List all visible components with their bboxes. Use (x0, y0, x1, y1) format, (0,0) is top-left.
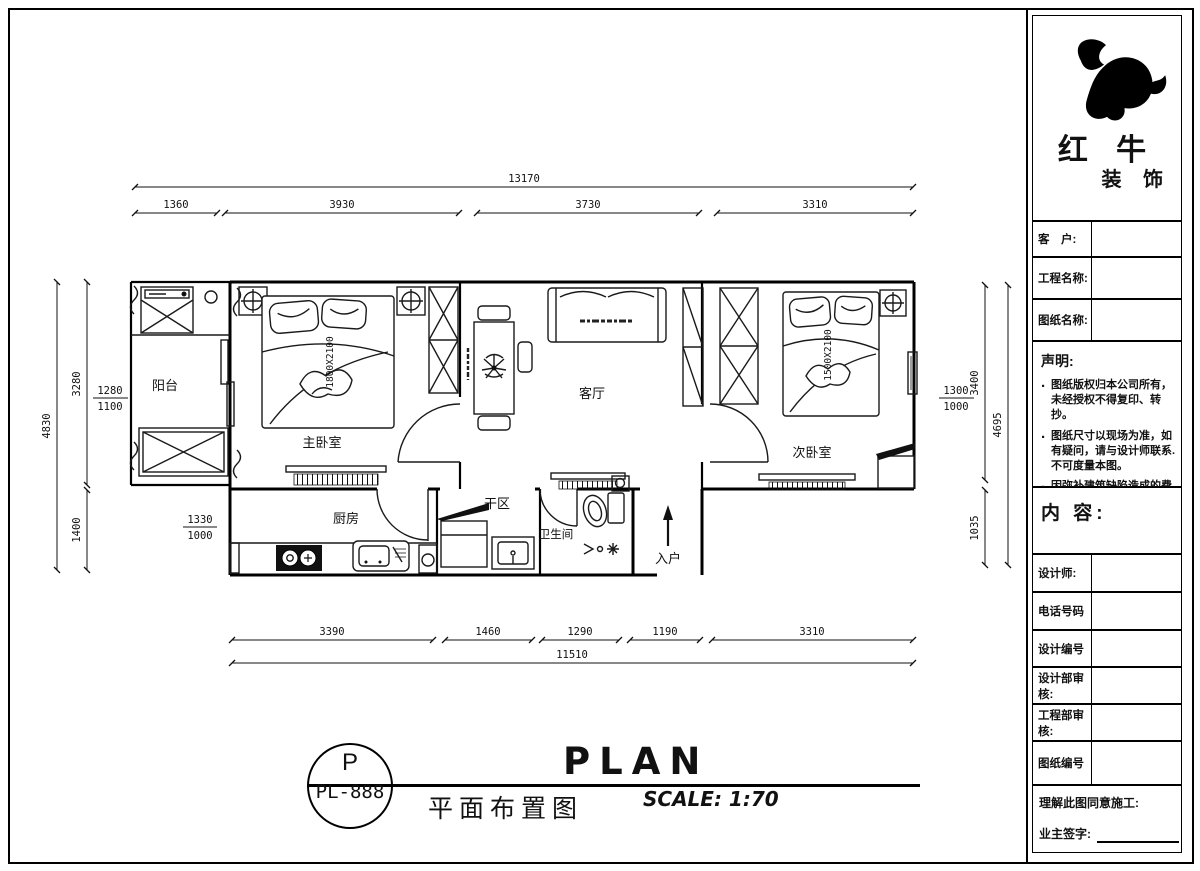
dim-top-3: 3730 (575, 199, 600, 211)
dim-balcony-fraction: 1280 1100 (93, 385, 128, 413)
dim-bot-total: 11510 (556, 649, 588, 661)
dim-bot-4: 1190 (652, 626, 677, 638)
titleblock-divider (1026, 8, 1028, 862)
svg-text:1100: 1100 (97, 401, 122, 413)
vanity-sink-icon (492, 537, 534, 569)
design-review-label: 设计部审核: (1033, 668, 1092, 703)
toilet-icon (580, 492, 624, 529)
statement-box: 声明: 图纸版权归本公司所有，未经授权不得复印、转抄。 图纸尺寸以现场为准，如有… (1032, 341, 1182, 487)
stamp-code: PL-888 (309, 781, 391, 804)
drawing-title-en: PLAN (563, 740, 709, 783)
svg-text:1000: 1000 (187, 530, 212, 542)
entrance-arrow-icon (663, 505, 673, 520)
field-eng-review: 工程部审核: (1032, 704, 1182, 741)
master-bedroom-room: 1800X2100 主卧室 (234, 287, 459, 485)
balcony-sink (205, 291, 217, 303)
field-sheet-no: 图纸编号 (1032, 741, 1182, 785)
entrance-label: 入户 (655, 551, 681, 566)
dim-bot-5: 3310 (799, 626, 824, 638)
design-no-label: 设计编号 (1033, 631, 1092, 666)
phone-value (1092, 593, 1181, 629)
living-room-label: 客厅 (579, 386, 605, 401)
living-room: 客厅 (468, 288, 703, 489)
brand-name-bottom: 装 饰 (1101, 170, 1171, 190)
dim-top-1: 1360 (163, 199, 188, 211)
second-bedroom-room: 1500X2100 次卧室 (720, 288, 917, 490)
designer-label: 设计师: (1033, 555, 1092, 591)
svg-text:1000: 1000 (943, 401, 968, 413)
kitchen-label: 厨房 (333, 511, 359, 526)
statement-item: 图纸尺寸以现场为准，如有疑问，请与设计师联系.不可度量本图。 (1051, 429, 1177, 475)
door-master-bedroom (398, 404, 460, 462)
washing-machine-icon (437, 503, 489, 567)
dim-left-lower: 1400 (71, 517, 83, 542)
brand-name-top: 红 牛 (1058, 136, 1156, 166)
radiator-second (759, 474, 855, 490)
balcony-room: 阳台 (131, 286, 231, 476)
field-designer: 设计师: (1032, 554, 1182, 592)
design-review-value (1092, 668, 1181, 703)
sheet-no-value (1092, 742, 1181, 784)
second-bedroom-label: 次卧室 (792, 445, 831, 460)
eng-review-value (1092, 705, 1181, 740)
washing-machine-balcony (141, 287, 193, 333)
dim-left-upper: 3280 (71, 371, 83, 396)
dim-right-total: 4695 (992, 412, 1004, 437)
bathroom-label: 卫生间 (539, 527, 574, 541)
statement-title: 声明: (1041, 351, 1181, 371)
dim-left-total: 4830 (41, 413, 53, 438)
kitchen-room: 厨房 (230, 511, 437, 573)
designer-value (1092, 555, 1181, 591)
design-no-value (1092, 631, 1181, 666)
tv-cabinet-column (683, 288, 703, 406)
drawing-title-cn: 平面布置图 (428, 789, 583, 825)
agreement-label: 理解此图同意施工: (1039, 794, 1181, 811)
project-label: 工程名称: (1033, 258, 1092, 298)
field-customer: 客 户: (1032, 221, 1182, 257)
statement-item: 图纸版权归本公司所有，未经授权不得复印、转抄。 (1051, 378, 1177, 424)
door-bathroom (540, 489, 577, 526)
agreement-box: 理解此图同意施工: 业主签字: (1032, 785, 1182, 853)
dim-top-2: 3930 (329, 199, 354, 211)
dining-table (468, 306, 532, 430)
door-second-bedroom (710, 404, 768, 462)
master-bedroom-label: 主卧室 (302, 435, 341, 450)
signature-label: 业主签字: (1039, 825, 1181, 842)
dry-area-label: 干区 (484, 496, 510, 511)
content-label: 内 容: (1041, 498, 1181, 525)
sheet-no-label: 图纸编号 (1033, 742, 1092, 784)
wardrobe-master (429, 287, 458, 393)
content-box: 内 容: (1032, 487, 1182, 554)
floor-plan-sheet: { "sidebar": { "brand": {"line1": "红 牛",… (0, 0, 1200, 871)
dim-bot-1: 3390 (319, 626, 344, 638)
bed-second: 1500X2100 (783, 292, 879, 416)
customer-label: 客 户: (1033, 222, 1092, 256)
phone-label: 电话号码 (1033, 593, 1092, 629)
kitchen-sink-icon (353, 541, 409, 571)
ceiling-lamp-icon (880, 290, 906, 316)
desk-second-bedroom (876, 443, 915, 488)
dim-kitchen-fraction: 1330 1000 (183, 514, 217, 542)
dimension-lines: 13170 1360 3930 3730 3310 3390 1460 1290… (41, 173, 1008, 663)
wardrobe-second (720, 288, 758, 404)
drawing-stamp: P PL-888 (307, 743, 393, 829)
door-balcony-sliding (221, 340, 234, 426)
eng-review-label: 工程部审核: (1033, 705, 1092, 740)
dim-bot-2: 1460 (475, 626, 500, 638)
dim-right-upper: 3400 (969, 370, 981, 395)
bed-size-label: 1500X2100 (823, 329, 834, 381)
balcony-label: 阳台 (152, 378, 178, 393)
floor-drain-box (419, 545, 437, 573)
dim-top-4: 3310 (802, 199, 827, 211)
dry-area-room: 干区 (437, 496, 534, 569)
brand-logo-box: 红 牛 装 饰 (1032, 15, 1182, 221)
drawing-name-label: 图纸名称: (1033, 300, 1092, 340)
radiator-master (286, 466, 386, 485)
svg-text:1280: 1280 (97, 385, 122, 397)
red-bull-logo-icon (1044, 30, 1170, 134)
customer-value (1092, 222, 1181, 256)
drawing-name-value (1092, 300, 1181, 340)
footer-rule (307, 784, 920, 787)
dim-right-lower: 1035 (969, 515, 981, 540)
balcony-cabinet (139, 428, 228, 476)
field-design-no: 设计编号 (1032, 630, 1182, 667)
svg-text:1330: 1330 (187, 514, 212, 526)
stove-icon (276, 545, 322, 571)
door-kitchen (377, 489, 428, 541)
entrance: 入户 (655, 505, 681, 566)
shower-icon (584, 543, 619, 555)
signature-line (1097, 841, 1179, 843)
project-value (1092, 258, 1181, 298)
floor-plan-drawing: 阳台 1800X2100 (0, 0, 1026, 871)
ceiling-lamp-icon (397, 287, 425, 315)
sofa (548, 288, 666, 342)
field-project: 工程名称: (1032, 257, 1182, 299)
field-drawing: 图纸名称: (1032, 299, 1182, 341)
field-design-review: 设计部审核: (1032, 667, 1182, 704)
field-phone: 电话号码 (1032, 592, 1182, 630)
drawing-scale: SCALE: 1:70 (643, 787, 779, 811)
bed-size-label: 1800X2100 (325, 336, 336, 388)
stamp-letter: P (309, 745, 391, 781)
dim-bot-3: 1290 (567, 626, 592, 638)
svg-text:1300: 1300 (943, 385, 968, 397)
bed-master: 1800X2100 (262, 296, 394, 428)
dim-top-total: 13170 (508, 173, 540, 185)
